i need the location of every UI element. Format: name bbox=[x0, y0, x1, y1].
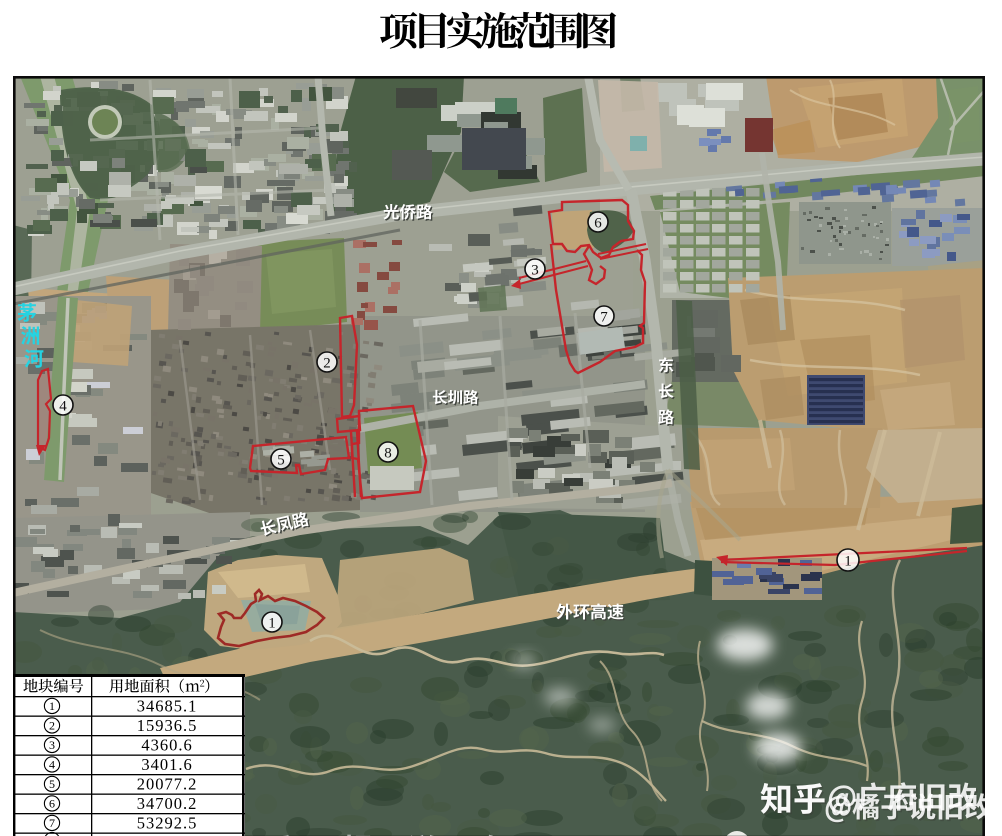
svg-text:15936.5: 15936.5 bbox=[137, 716, 198, 735]
svg-text:3401.6: 3401.6 bbox=[141, 755, 192, 774]
svg-text:7: 7 bbox=[600, 309, 608, 325]
svg-text:53292.5: 53292.5 bbox=[137, 813, 198, 832]
svg-text:5: 5 bbox=[277, 452, 285, 468]
svg-text:8: 8 bbox=[384, 445, 392, 461]
svg-text:3: 3 bbox=[531, 262, 539, 278]
svg-text:6: 6 bbox=[49, 797, 55, 811]
svg-text:7: 7 bbox=[49, 816, 55, 830]
svg-text:2: 2 bbox=[49, 719, 55, 733]
svg-text:4: 4 bbox=[59, 398, 67, 414]
svg-text:2: 2 bbox=[323, 355, 331, 371]
svg-text:5: 5 bbox=[49, 777, 55, 791]
svg-text:1: 1 bbox=[268, 615, 276, 631]
svg-text:1: 1 bbox=[844, 553, 852, 569]
svg-text:34685.1: 34685.1 bbox=[137, 696, 198, 715]
svg-text:4: 4 bbox=[49, 758, 55, 772]
svg-text:6: 6 bbox=[594, 215, 602, 231]
svg-text:4360.6: 4360.6 bbox=[141, 735, 192, 754]
svg-text:3: 3 bbox=[49, 738, 55, 752]
svg-text:34700.2: 34700.2 bbox=[137, 794, 198, 813]
svg-text:20077.2: 20077.2 bbox=[137, 774, 198, 793]
svg-text:1: 1 bbox=[49, 699, 55, 713]
